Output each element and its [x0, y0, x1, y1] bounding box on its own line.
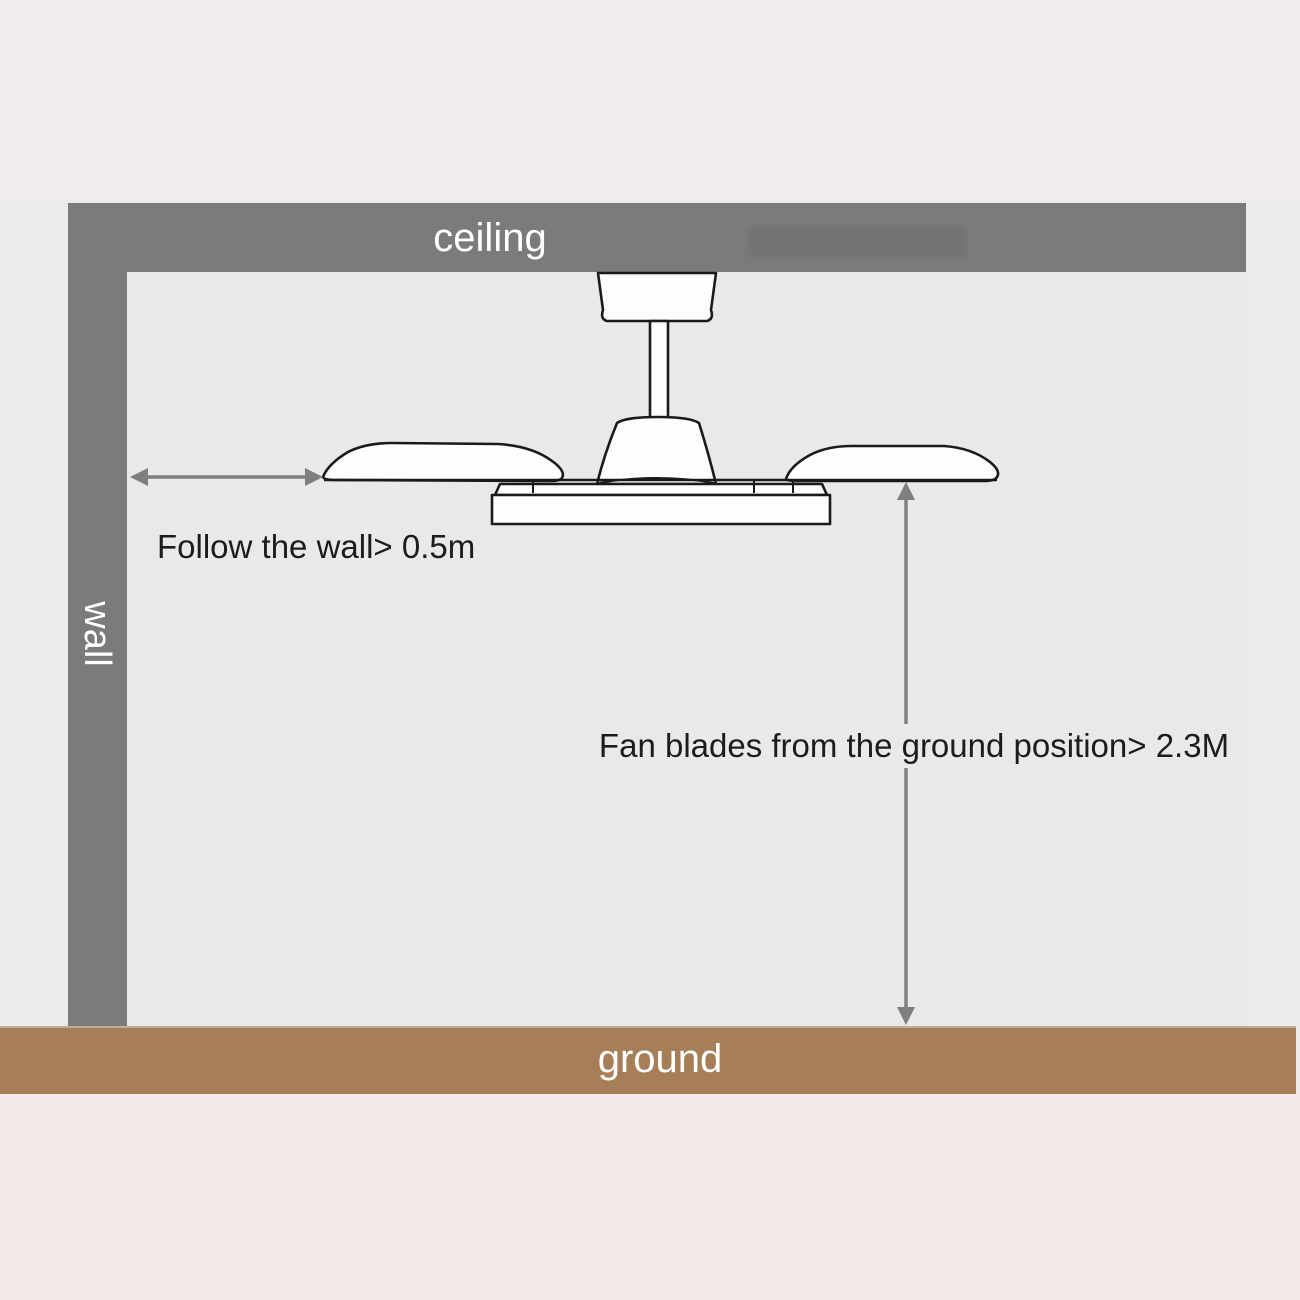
bottom-background-band: [0, 1092, 1300, 1300]
ceiling-bar: [68, 203, 1246, 272]
wall-label: wall: [78, 601, 116, 666]
watermark: [748, 227, 966, 257]
room-interior: [127, 272, 1246, 1026]
ground-label: ground: [598, 1039, 723, 1079]
ground-clearance-label: Fan blades from the ground position> 2.3…: [595, 724, 1233, 768]
wall-clearance-label: Follow the wall> 0.5m: [157, 527, 475, 567]
ceiling-label: ceiling: [433, 218, 546, 258]
